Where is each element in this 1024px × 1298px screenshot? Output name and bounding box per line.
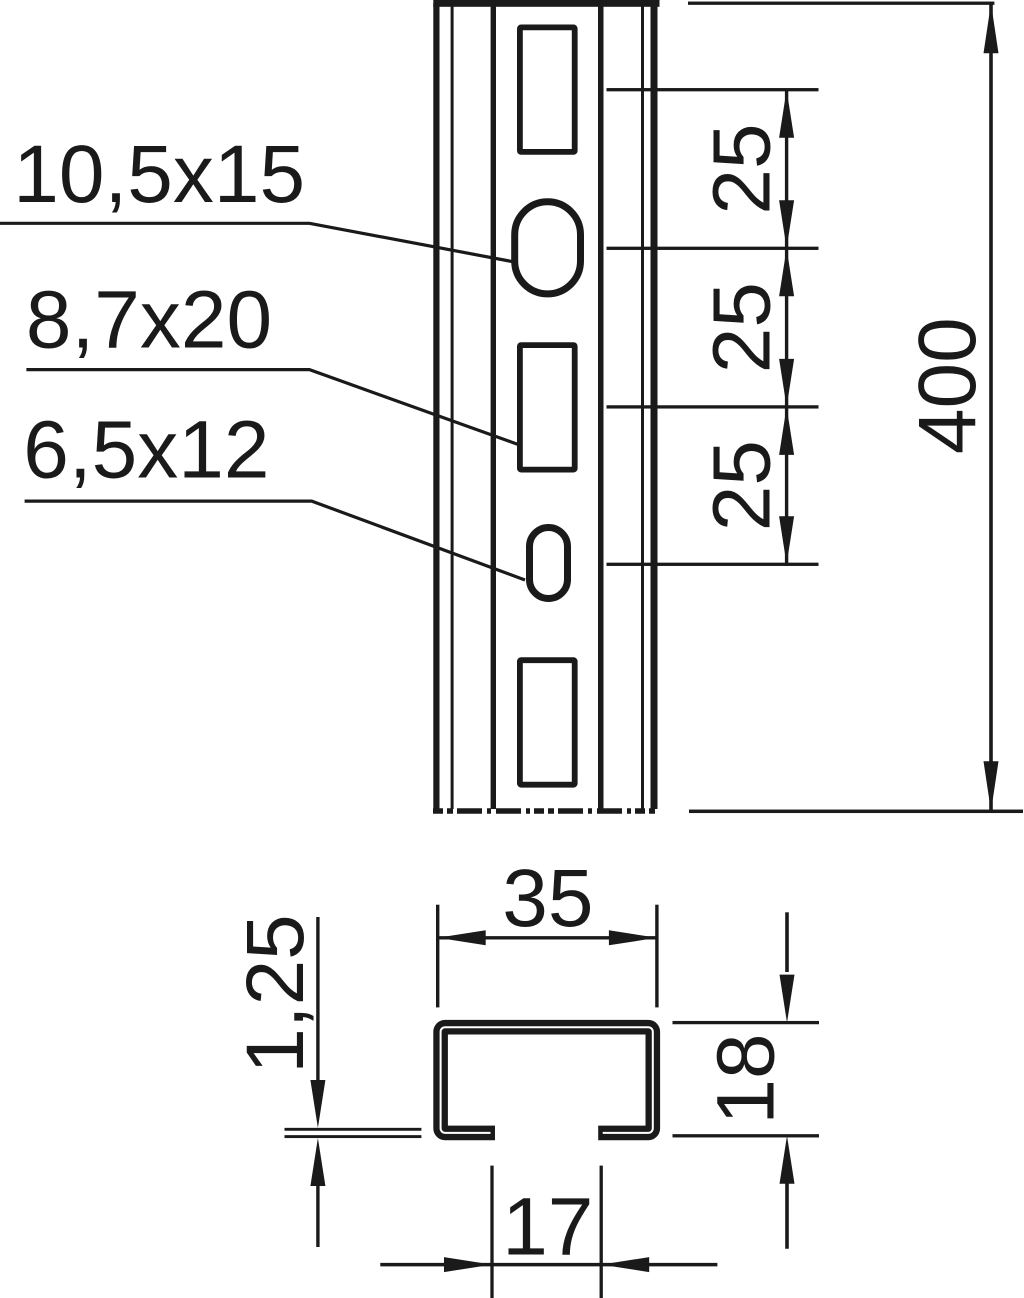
svg-text:10,5x15: 10,5x15 <box>13 129 305 220</box>
svg-text:25: 25 <box>697 282 788 373</box>
svg-text:1,25: 1,25 <box>230 914 321 1074</box>
svg-text:400: 400 <box>902 317 993 454</box>
svg-text:6,5x12: 6,5x12 <box>23 405 269 496</box>
svg-text:25: 25 <box>697 123 788 214</box>
svg-text:17: 17 <box>502 1181 593 1272</box>
svg-text:25: 25 <box>697 440 788 531</box>
svg-text:35: 35 <box>502 853 593 944</box>
svg-text:8,7x20: 8,7x20 <box>26 274 272 365</box>
svg-text:18: 18 <box>701 1033 792 1124</box>
